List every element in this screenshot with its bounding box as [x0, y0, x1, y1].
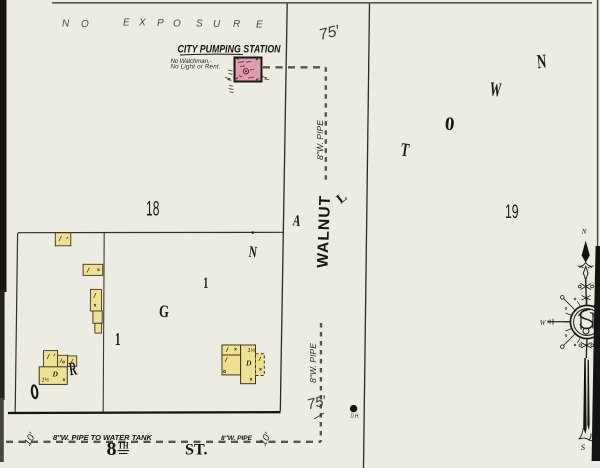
svg-text:N: N	[536, 51, 547, 74]
svg-text:WALNUT: WALNUT	[315, 195, 335, 269]
svg-text:X: X	[138, 18, 146, 29]
svg-text:S: S	[196, 19, 203, 30]
svg-text:N: N	[248, 244, 258, 262]
svg-text:N: N	[62, 19, 70, 30]
svg-text:D: D	[52, 370, 59, 379]
svg-text:1½: 1½	[248, 347, 256, 354]
svg-text:E: E	[123, 18, 130, 29]
svg-text:G: G	[158, 301, 170, 322]
svg-text:TH: TH	[118, 441, 129, 451]
svg-text:8″W. PIPE: 8″W. PIPE	[308, 343, 318, 383]
svg-text:19: 19	[505, 202, 519, 223]
svg-text:U: U	[213, 19, 221, 30]
svg-text:CITY PUMPING STATION: CITY PUMPING STATION	[178, 44, 282, 56]
svg-text:10′: 10′	[258, 430, 274, 448]
svg-text:D: D	[245, 359, 252, 368]
svg-text:75′: 75′	[306, 393, 329, 413]
svg-text:8: 8	[107, 439, 117, 460]
svg-text:18: 18	[146, 198, 159, 221]
svg-text:8″W. PIPE TO WATER TANK: 8″W. PIPE TO WATER TANK	[53, 435, 153, 442]
svg-text:1½: 1½	[42, 377, 50, 384]
svg-text:1: 1	[203, 275, 208, 292]
svg-text:O: O	[173, 19, 181, 30]
svg-text:A: A	[292, 212, 302, 230]
svg-text:8″W. PIPE: 8″W. PIPE	[315, 120, 325, 160]
svg-text:O: O	[81, 19, 89, 30]
svg-text:T: T	[399, 140, 410, 162]
svg-text:R: R	[233, 19, 240, 30]
svg-text:D.H.: D.H.	[351, 414, 360, 420]
svg-text:E: E	[256, 20, 263, 31]
svg-text:N: N	[581, 228, 587, 236]
svg-text:8″W. PIPE: 8″W. PIPE	[221, 435, 252, 442]
svg-text:75′: 75′	[317, 22, 342, 44]
svg-text:ST.: ST.	[185, 442, 208, 459]
svg-text:W: W	[540, 320, 547, 327]
svg-text:L: L	[333, 189, 349, 206]
svg-text:1: 1	[115, 329, 121, 349]
svg-text:0: 0	[444, 114, 455, 136]
svg-text:W: W	[489, 78, 503, 101]
svg-text:S: S	[581, 442, 586, 452]
svg-text:No Light or Rent.: No Light or Rent.	[171, 64, 221, 71]
svg-text:10′: 10′	[22, 430, 38, 448]
svg-text:P: P	[157, 18, 164, 29]
